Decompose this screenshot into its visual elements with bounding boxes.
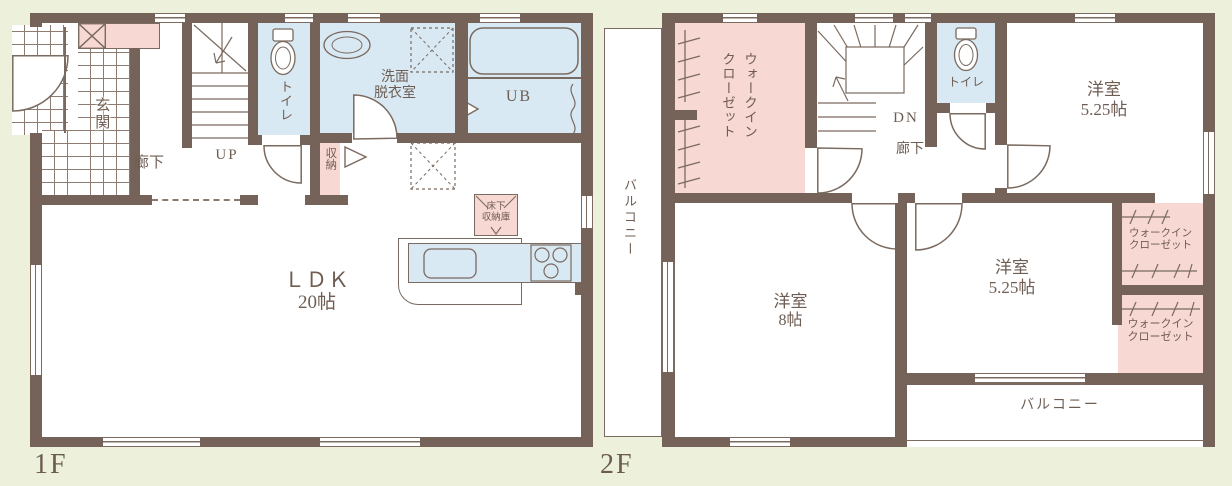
- wic-main-line1: ウォークイン: [738, 52, 760, 139]
- kitchen-sink-icon: [423, 248, 477, 279]
- floor-label-2f: 2F: [600, 449, 634, 481]
- room-label-se: 洋室 5.25帖: [958, 258, 1066, 297]
- room-label-genkan: 玄関: [92, 97, 109, 131]
- window: [662, 262, 675, 372]
- door-swing-icon: [817, 148, 862, 193]
- wic-upper-line2: クローゼット: [1118, 240, 1203, 252]
- ldk-size: 20帖: [255, 292, 379, 314]
- room-sw-name: 洋室: [748, 292, 833, 312]
- wall: [455, 133, 593, 143]
- door-swing-icon: [950, 113, 986, 149]
- wall: [895, 373, 975, 385]
- wall: [995, 23, 1007, 145]
- wall: [662, 23, 675, 437]
- wall: [182, 23, 192, 148]
- wall: [925, 23, 937, 147]
- room-label-ne: 洋室 5.25帖: [1048, 80, 1160, 119]
- wic-lower-line2: クローゼット: [1118, 331, 1203, 344]
- stairs-direction-dn: DN: [884, 110, 928, 127]
- ldk-name: ＬＤＫ: [255, 268, 379, 292]
- wall: [1085, 373, 1215, 385]
- wall: [30, 13, 42, 27]
- door-swing-icon: [12, 55, 68, 111]
- window: [30, 265, 42, 375]
- stairs-direction-up: UP: [204, 147, 250, 164]
- stove-icon: [530, 244, 572, 282]
- wall: [995, 188, 1007, 203]
- room-label-bath: UB: [497, 88, 541, 106]
- wall: [310, 23, 320, 203]
- room-label-hallway-1f: 廊下: [134, 155, 164, 172]
- door-swing-icon: [1007, 145, 1050, 188]
- room-label-ldk: ＬＤＫ 20帖: [255, 268, 379, 314]
- dashed-opening-icon: [410, 142, 456, 190]
- wall: [397, 133, 457, 143]
- wall: [320, 133, 352, 143]
- porch-step-line: [64, 27, 66, 133]
- closet-rod-icon: [1122, 262, 1197, 280]
- room-ne-size: 5.25帖: [1048, 100, 1160, 120]
- window: [905, 13, 931, 23]
- wall: [986, 103, 995, 113]
- wall: [662, 193, 852, 203]
- wall: [248, 135, 262, 145]
- window: [480, 13, 520, 23]
- floor-plan-canvas: 玄関 廊下 UP トイレ 洗面 脱衣室 UB 収納 床下 収納庫 ＬＤＫ 20帖…: [0, 0, 1232, 486]
- door-swing-icon: [264, 145, 302, 183]
- window: [730, 437, 790, 447]
- bath-edge-line: [457, 77, 583, 79]
- closet-rod-icon: [678, 118, 704, 188]
- wall: [895, 203, 907, 447]
- window: [1203, 132, 1215, 194]
- closet-rod-icon: [1122, 208, 1170, 226]
- cabinet-x-icon: [78, 23, 106, 49]
- wic-upper-line1: ウォークイン: [1118, 228, 1203, 240]
- wall: [248, 23, 258, 145]
- wall: [1112, 285, 1215, 295]
- door-swing-icon: [852, 203, 898, 249]
- wall: [581, 13, 593, 447]
- room-label-wic-main: ウォークイン クローゼット: [716, 52, 760, 139]
- window: [581, 196, 593, 228]
- room-label-sw: 洋室 8帖: [748, 292, 833, 330]
- washroom-line1: 洗面: [352, 70, 438, 86]
- label-wic-lower: ウォークイン クローゼット: [1118, 318, 1203, 343]
- label-balcony-bottom: バルコニー: [1005, 398, 1115, 414]
- room-boundary-dashed: [152, 199, 240, 201]
- washer-space-icon: [410, 27, 454, 73]
- room-label-washroom: 洗面 脱衣室: [352, 70, 438, 102]
- folding-door-icon: [344, 146, 368, 168]
- wall: [240, 195, 258, 205]
- label-balcony-left: バルコニー: [621, 178, 636, 258]
- window: [723, 13, 757, 23]
- window: [348, 13, 380, 23]
- wall: [898, 193, 915, 203]
- wall: [305, 195, 348, 205]
- washroom-line2: 脱衣室: [352, 86, 438, 102]
- stairs-up-icon: [192, 23, 248, 145]
- room-sw-size: 8帖: [748, 312, 833, 330]
- sink-icon: [322, 30, 372, 60]
- bathtub-icon: [468, 26, 580, 76]
- label-underfloor-storage: 床下 収納庫: [474, 202, 518, 224]
- room-label-closet-1f: 収納: [323, 147, 336, 170]
- closet-rod-icon: [678, 30, 704, 102]
- window: [855, 13, 893, 23]
- wall: [962, 193, 1155, 203]
- genkan-tile: [42, 130, 78, 195]
- window: [285, 13, 313, 23]
- room-label-hallway-2f: 廊下: [886, 142, 934, 158]
- floor-label-1f: 1F: [34, 449, 68, 481]
- wall: [937, 103, 950, 113]
- bath-door-curve-icon: [566, 84, 580, 134]
- toilet-icon: [270, 28, 296, 76]
- underfloor-line2: 収納庫: [474, 213, 518, 224]
- wic-main-line2: クローゼット: [716, 52, 738, 139]
- window: [320, 437, 420, 447]
- wall: [130, 48, 140, 195]
- room-ne-name: 洋室: [1048, 80, 1160, 100]
- window: [155, 13, 185, 23]
- wall: [675, 110, 697, 120]
- room-se-name: 洋室: [958, 258, 1066, 278]
- room-se-size: 5.25帖: [958, 278, 1066, 298]
- wall: [41, 195, 152, 205]
- room-label-toilet-1f: トイレ: [277, 80, 292, 122]
- wic-lower-line1: ウォークイン: [1118, 318, 1203, 331]
- room-label-toilet-2f: トイレ: [939, 76, 993, 90]
- wall: [455, 23, 468, 133]
- wall: [1112, 203, 1122, 325]
- underfloor-line1: 床下: [474, 202, 518, 213]
- window: [975, 373, 1085, 385]
- closet-rod-icon: [1122, 300, 1200, 318]
- wall: [805, 23, 817, 148]
- door-swing-icon: [915, 203, 962, 250]
- toilet-icon: [953, 27, 979, 73]
- label-wic-upper: ウォークイン クローゼット: [1118, 228, 1203, 252]
- window: [103, 437, 200, 447]
- window: [1075, 13, 1115, 23]
- wall: [575, 283, 593, 295]
